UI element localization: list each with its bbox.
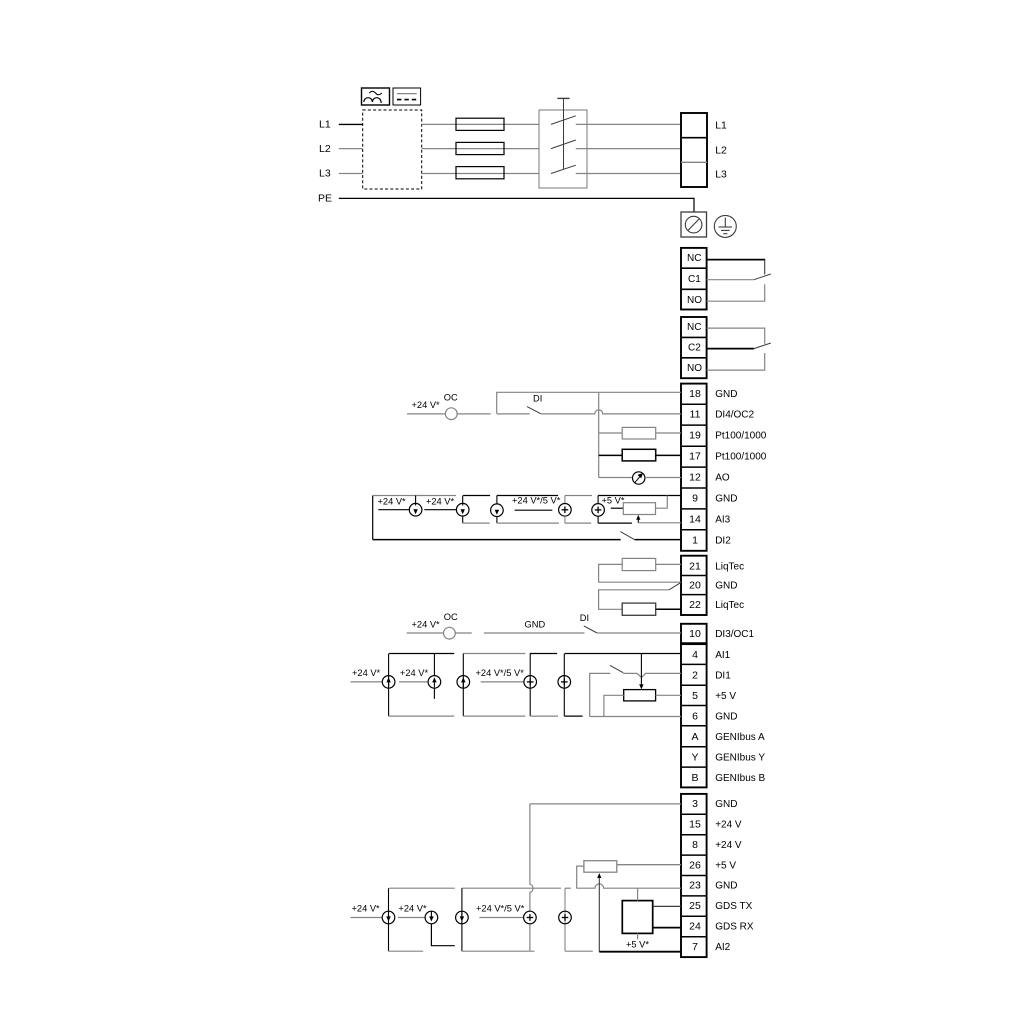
svg-text:Pt100/1000: Pt100/1000 [715,452,767,463]
svg-text:AI2: AI2 [715,942,730,953]
svg-text:22: 22 [689,599,701,611]
svg-text:LiqTec: LiqTec [715,600,744,611]
svg-text:NC: NC [687,322,701,333]
svg-text:+24 V*: +24 V* [412,400,441,410]
svg-text:+5 V: +5 V [715,860,736,871]
svg-text:+24 V*/5 V*: +24 V*/5 V* [512,496,561,506]
svg-text:L2: L2 [319,143,331,155]
svg-text:GND: GND [715,799,737,810]
svg-text:+5 V*: +5 V* [626,939,649,949]
svg-text:+24 V*/5 V*: +24 V*/5 V* [476,903,525,913]
svg-text:24: 24 [689,921,701,933]
svg-text:14: 14 [689,513,701,525]
svg-text:+24 V*: +24 V* [378,496,407,506]
svg-text:2: 2 [692,670,698,682]
svg-text:+24 V: +24 V [715,840,742,851]
svg-text:Y: Y [691,752,698,764]
svg-text:+24 V*: +24 V* [352,668,381,678]
svg-text:L3: L3 [715,169,727,181]
svg-text:GND: GND [715,711,737,722]
svg-text:DI2: DI2 [715,535,731,546]
svg-text:AI1: AI1 [715,650,730,661]
svg-text:NO: NO [687,363,702,374]
svg-text:GENIbus Y: GENIbus Y [715,753,765,764]
svg-text:NC: NC [687,253,701,264]
svg-text:26: 26 [689,859,701,871]
svg-text:1: 1 [692,534,698,546]
svg-text:Pt100/1000: Pt100/1000 [715,431,767,442]
svg-text:17: 17 [689,451,701,463]
svg-text:9: 9 [692,493,698,505]
svg-text:PE: PE [318,193,332,205]
svg-text:GND: GND [525,619,546,629]
svg-text:L2: L2 [715,144,727,156]
svg-text:C1: C1 [688,274,701,285]
svg-text:+24 V: +24 V [715,820,742,831]
svg-text:GENIbus A: GENIbus A [715,732,765,743]
svg-text:25: 25 [689,900,701,912]
svg-text:GDS RX: GDS RX [715,922,754,933]
svg-text:7: 7 [692,941,698,953]
svg-text:4: 4 [692,649,698,661]
svg-text:LiqTec: LiqTec [715,562,744,573]
svg-text:AO: AO [715,473,730,484]
svg-text:GND: GND [715,494,737,505]
svg-text:B: B [691,772,698,784]
svg-text:OC: OC [444,393,458,403]
svg-text:GENIbus B: GENIbus B [715,773,765,784]
svg-text:+24 V*: +24 V* [400,668,429,678]
svg-text:DI1: DI1 [715,671,731,682]
svg-text:+5 V: +5 V [715,691,736,702]
svg-text:L1: L1 [715,119,727,131]
svg-text:10: 10 [689,628,701,640]
svg-text:15: 15 [689,819,701,831]
svg-text:DI4/OC2: DI4/OC2 [715,410,754,421]
svg-text:OC: OC [444,612,458,622]
svg-text:DI: DI [533,394,542,404]
svg-text:L1: L1 [319,119,331,131]
svg-text:+24 V*: +24 V* [398,903,427,913]
svg-text:12: 12 [689,472,701,484]
svg-text:11: 11 [690,409,701,421]
svg-text:3: 3 [692,798,698,810]
svg-text:+24 V*: +24 V* [426,496,455,506]
svg-text:+5 V*: +5 V* [602,495,625,505]
svg-text:DI: DI [580,613,589,623]
svg-text:20: 20 [689,580,701,592]
svg-text:+24 V*: +24 V* [352,903,381,913]
svg-text:A: A [691,731,698,743]
svg-text:C2: C2 [688,343,701,354]
svg-text:+24 V*: +24 V* [412,619,441,629]
svg-text:6: 6 [692,710,698,722]
svg-text:5: 5 [692,690,698,702]
svg-text:+24 V*/5 V*: +24 V*/5 V* [476,668,525,678]
svg-text:21: 21 [689,561,701,573]
svg-text:L3: L3 [319,168,331,180]
svg-text:GND: GND [715,581,737,592]
svg-text:GND: GND [715,881,737,892]
svg-text:AI3: AI3 [715,514,730,525]
svg-text:GND: GND [715,389,737,400]
svg-text:DI3/OC1: DI3/OC1 [715,629,754,640]
svg-text:18: 18 [689,388,701,400]
svg-text:8: 8 [692,839,698,851]
svg-text:NO: NO [687,295,702,306]
svg-text:GDS TX: GDS TX [715,901,752,912]
svg-text:19: 19 [689,430,701,442]
svg-text:23: 23 [689,880,701,892]
